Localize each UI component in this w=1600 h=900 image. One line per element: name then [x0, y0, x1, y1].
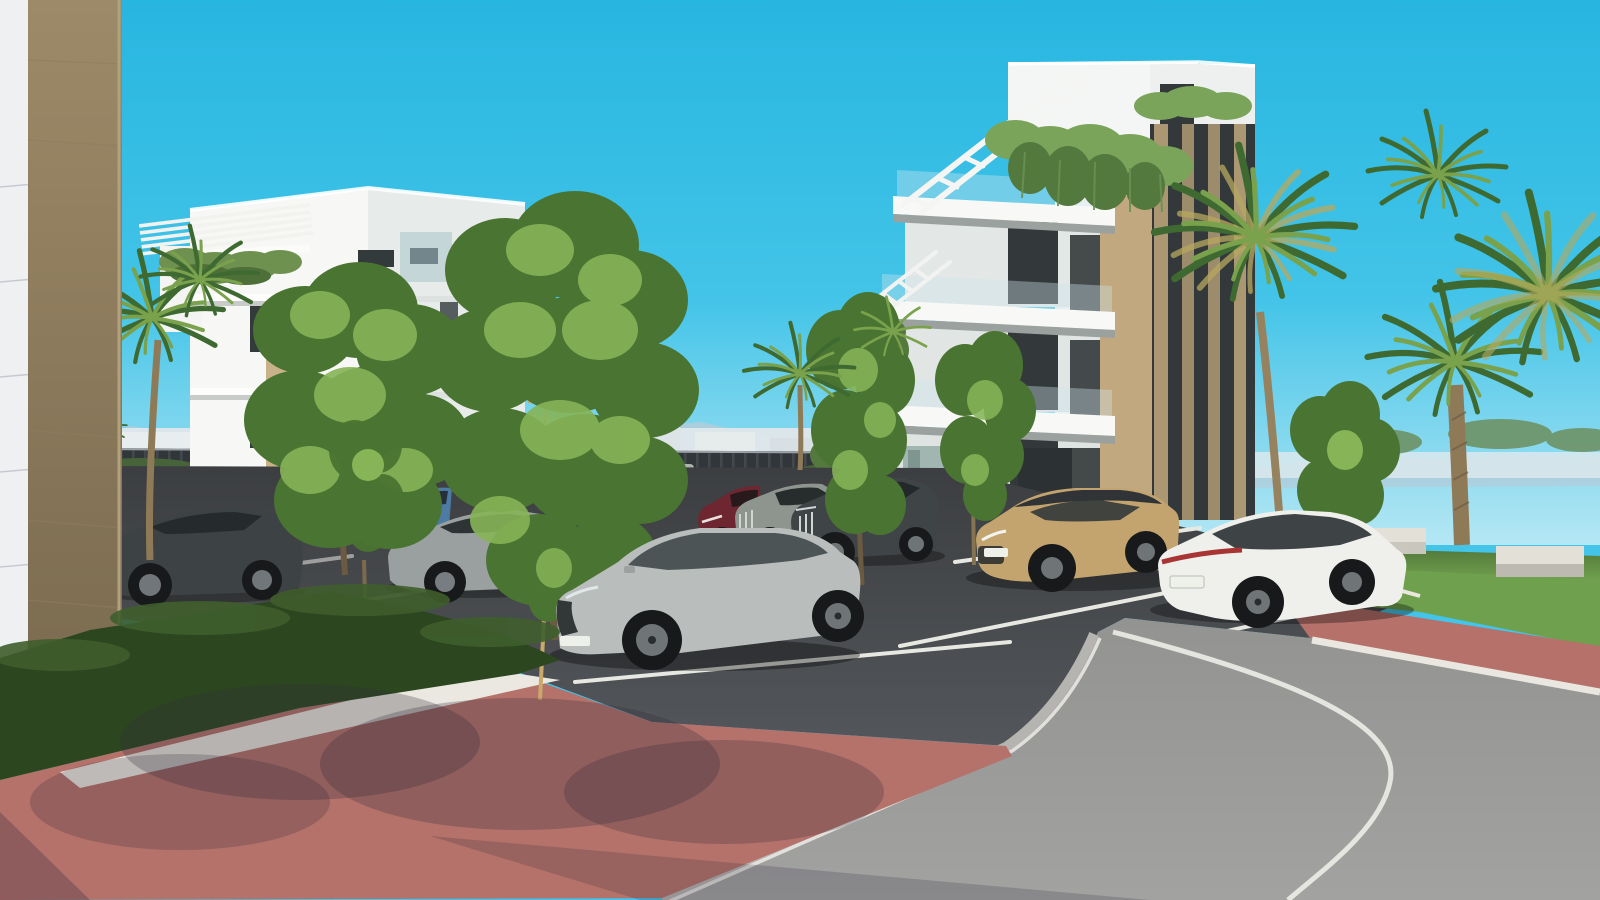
foreground-building-edge: [0, 0, 122, 700]
bench: [1496, 546, 1584, 577]
accent-wall-right: [1100, 196, 1152, 520]
stone-column: [28, 0, 122, 680]
scene-render: [0, 0, 1600, 900]
